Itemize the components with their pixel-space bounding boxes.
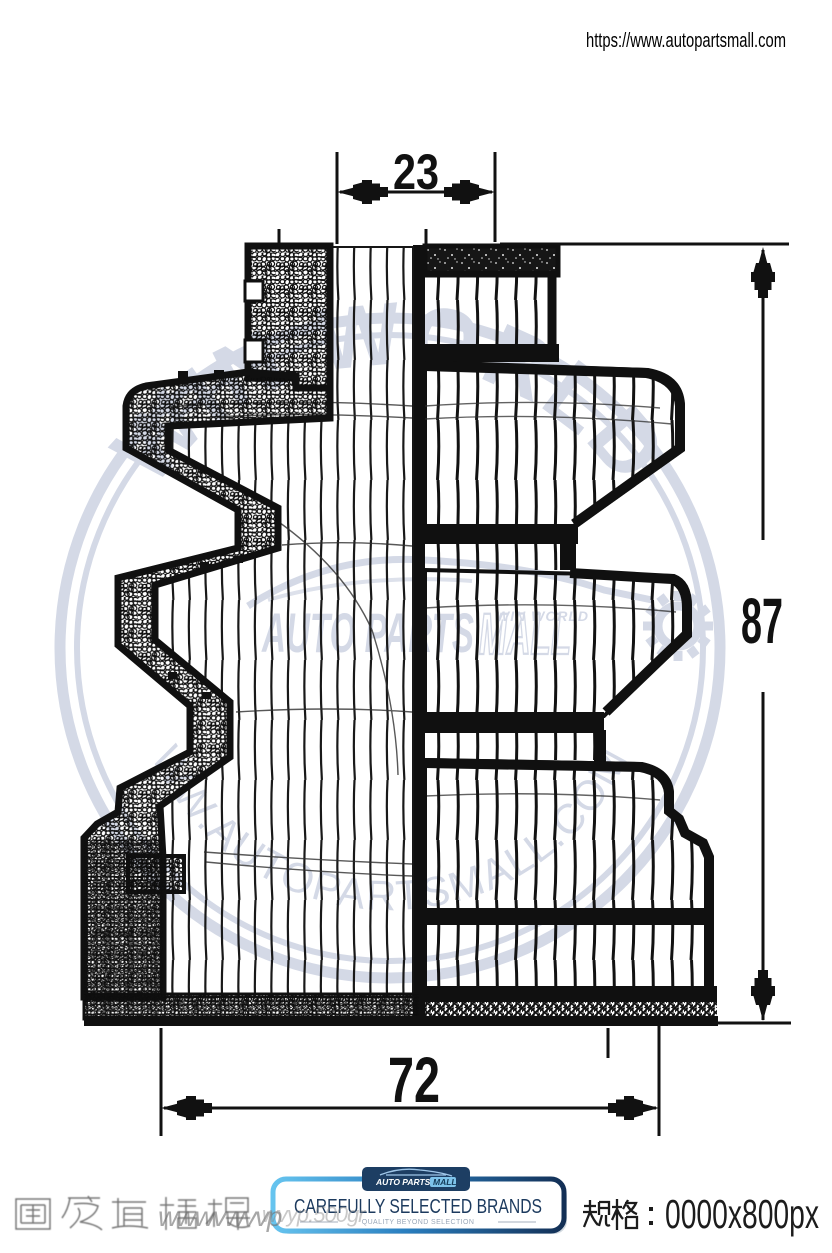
svg-text:QUALITY BEYOND SELECTION: QUALITY BEYOND SELECTION bbox=[362, 1219, 475, 1226]
svg-text:87: 87 bbox=[741, 585, 783, 657]
svg-text:23: 23 bbox=[393, 144, 439, 200]
svg-text:AUTO PARTS: AUTO PARTS bbox=[375, 1177, 431, 1187]
svg-text:wvyp.500gr: wvyp.500gr bbox=[262, 1202, 367, 1227]
svg-text:https://www.autopartsmall.com: https://www.autopartsmall.com bbox=[586, 29, 786, 52]
svg-text:72: 72 bbox=[388, 1044, 440, 1116]
svg-text:MALL: MALL bbox=[433, 1177, 457, 1187]
svg-text:0000x800px: 0000x800px bbox=[665, 1191, 819, 1237]
